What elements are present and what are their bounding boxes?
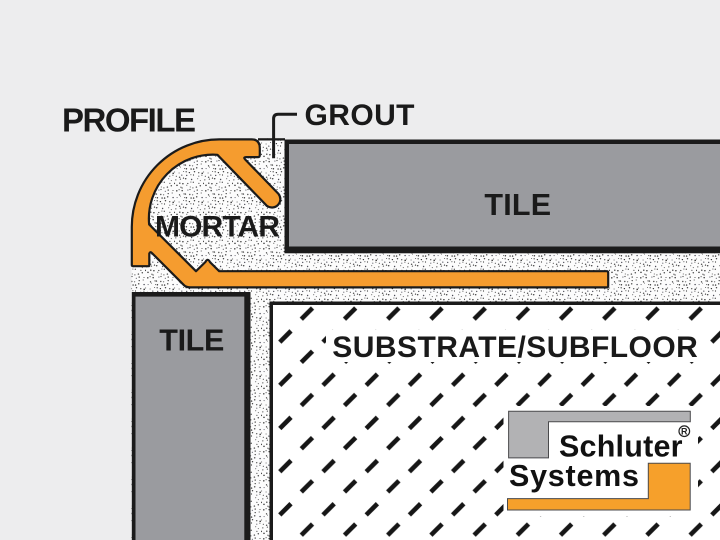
svg-text:Systems: Systems	[509, 459, 639, 493]
svg-text:R: R	[681, 427, 688, 437]
svg-text:TILE: TILE	[484, 188, 551, 222]
svg-text:PROFILE: PROFILE	[62, 102, 196, 139]
svg-text:GROUT: GROUT	[305, 99, 415, 132]
svg-text:TILE: TILE	[159, 324, 224, 358]
svg-text:SUBSTRATE/SUBFLOOR: SUBSTRATE/SUBFLOOR	[332, 331, 698, 364]
svg-text:MORTAR: MORTAR	[155, 211, 280, 244]
